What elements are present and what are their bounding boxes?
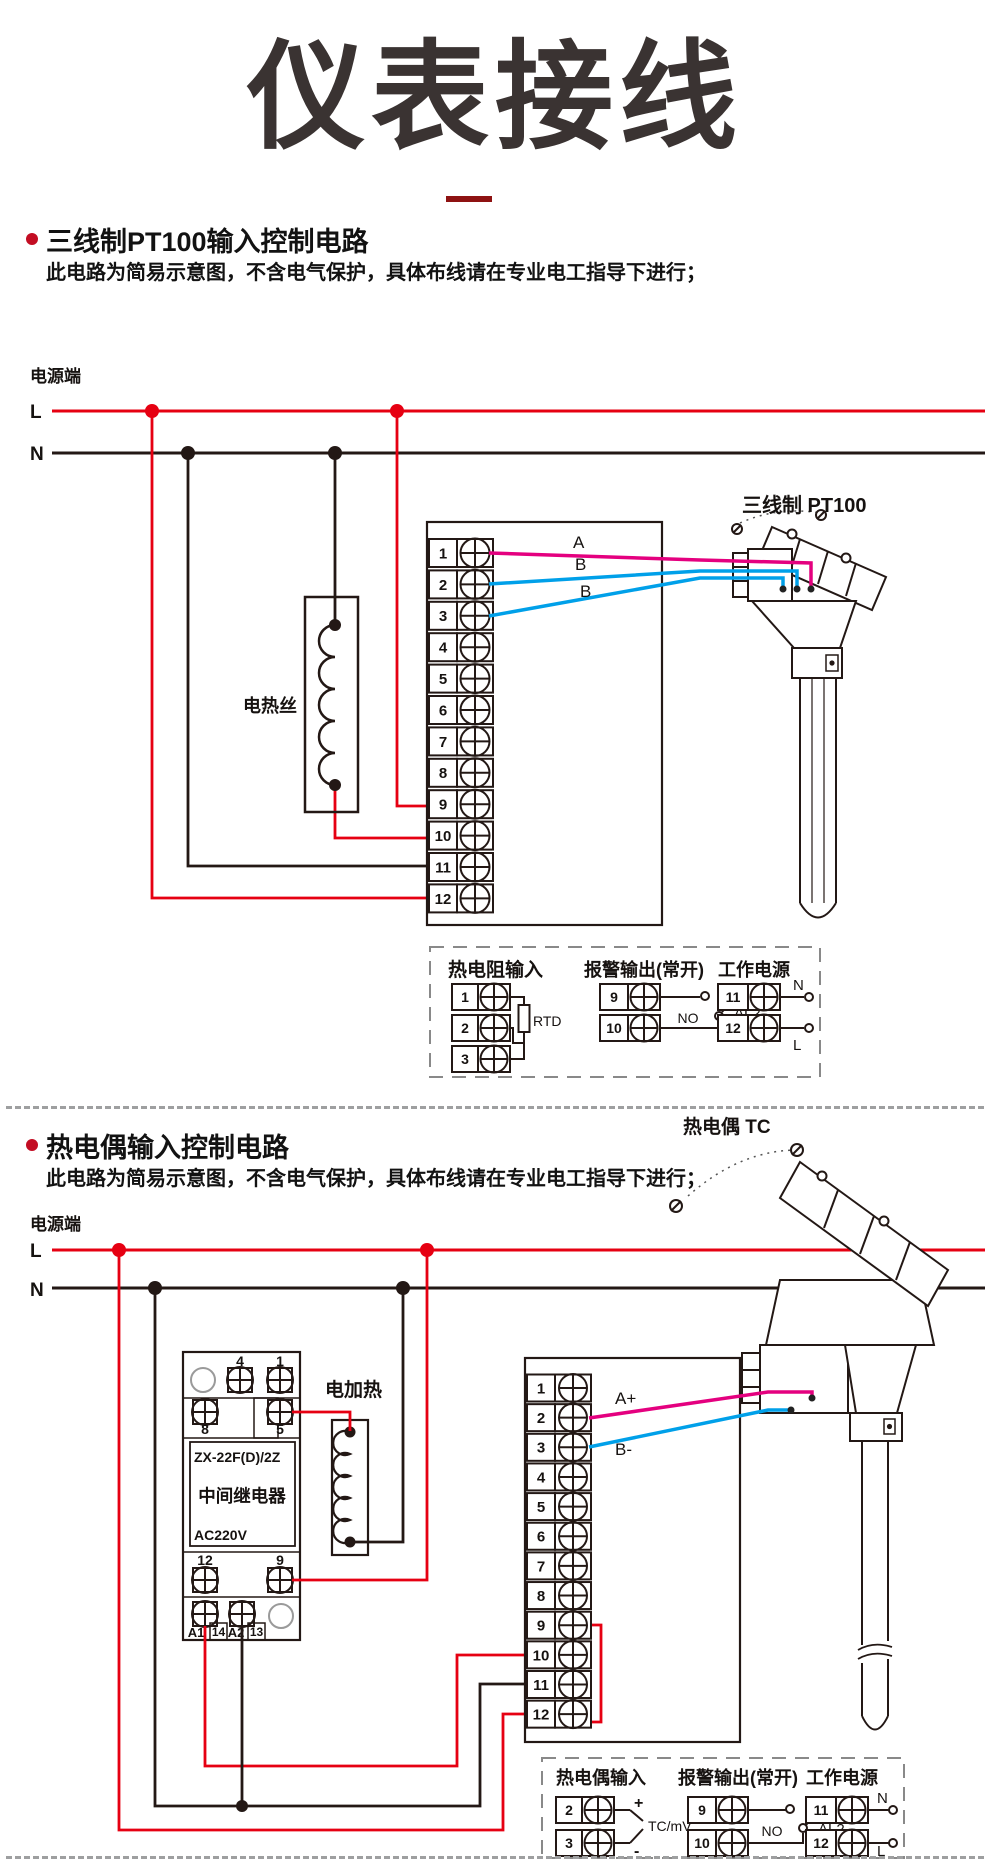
terminal-number: 2 [461,1020,469,1036]
power-n-label-2: N [877,1790,888,1807]
terminal-number: 10 [533,1647,550,1664]
terminal-number: 12 [533,1707,550,1724]
legend-alarm-title: 报警输出(常开) [584,959,704,980]
terminal-number: 5 [537,1499,545,1516]
terminal-number: 9 [610,989,618,1005]
terminal-number: 6 [537,1529,545,1546]
relay-model: ZX-22F(D)/2Z [194,1449,281,1465]
tc-device-label: TC/mV [648,1818,692,1834]
terminal-number: 9 [698,1802,706,1818]
alarm-no-label-2: NO [762,1823,783,1839]
legend-tc-terminals: 23 [556,1797,614,1857]
relay-a1: A1 [188,1625,205,1640]
legend-rtd-terminals: 123 [452,984,510,1073]
heater-label-1: 电热丝 [243,695,297,716]
wire-label-a: A [573,533,585,552]
power-n-label-1: N [793,977,804,994]
legend-1: 热电阻输入 报警输出(常开) 工作电源 123 RTD 910 NO AL2 1 [430,947,820,1077]
terminal-number: 12 [435,891,452,908]
legend-rtd-title: 热电阻输入 [448,958,543,981]
terminal-number: 4 [439,640,448,657]
terminal-number: 11 [814,1802,829,1818]
relay-13: 13 [250,1625,264,1639]
power-bus-1: 电源端 L N [30,366,985,465]
page: 仪表接线 三线制PT100输入控制电路 此电路为简易示意图，不含电气保护，具体布… [0,0,990,1864]
legend-tc-device [614,1810,643,1843]
section1-heading: 三线制PT100输入控制电路 [46,220,369,259]
legend-2: 热电偶输入 报警输出(常开) 工作电源 23 + - TC/mV 910 NO … [542,1758,904,1860]
terminal-number: 8 [537,1588,545,1605]
neutral-line-label-2: N [30,1280,44,1301]
terminal-number: 10 [435,828,452,845]
legend-power-title: 工作电源 [718,959,790,980]
sensor-label-1: 三线制 PT100 [742,493,866,517]
relay-t12: 12 [197,1552,213,1568]
legend-rtd-device [510,997,530,1059]
wire-label-b2: B [580,582,591,601]
rtd-device-label: RTD [533,1013,562,1029]
live-line-label-2: L [30,1241,42,1262]
terminal-number: 12 [725,1020,741,1036]
terminal-number: 9 [537,1618,545,1635]
terminal-number: 7 [537,1558,545,1575]
terminal-number: 2 [439,577,447,594]
heater-element-1 [305,597,358,812]
title-underline [446,196,492,202]
terminal-strip-2: 123456789101112 [527,1374,591,1728]
terminal-number: 4 [537,1469,546,1486]
wiring-1 [152,411,470,898]
section1-note: 此电路为简易示意图，不含电气保护，具体布线请在专业电工指导下进行； [46,256,706,285]
legend-alarm-terminals-2: 910 [688,1797,748,1857]
neutral-line-label: N [30,444,44,465]
terminal-number: 12 [813,1835,829,1851]
terminal-number: 9 [439,797,447,814]
terminal-number: 8 [439,765,447,782]
power-l-label-1: L [793,1037,801,1054]
terminal-number: 3 [461,1051,469,1067]
power-terminal-label-2: 电源端 [30,1214,81,1234]
relay-t5: 5 [276,1421,284,1437]
wire-label-b-minus: B- [615,1440,632,1459]
terminal-number: 11 [435,859,451,876]
live-line-label: L [30,402,42,423]
pt100-circuit-diagram: 电源端 L N 电热丝 123456789101112 [0,300,990,1085]
relay-t8: 8 [201,1421,209,1437]
tc-sensor-graphic [670,1144,948,1730]
legend-tc-title: 热电偶输入 [556,1767,646,1788]
terminal-number: 7 [439,734,447,751]
legend-alarm-terminals: 910 [600,984,660,1042]
relay-name: 中间继电器 [198,1486,286,1506]
page-title: 仪表接线 [0,34,990,164]
thermocouple-circuit-diagram: 电源端 L N 4 1 8 [0,1110,990,1864]
terminal-number: 11 [533,1677,549,1694]
bottom-separator [6,1856,984,1859]
legend-power-title-2: 工作电源 [806,1767,878,1788]
sensor-label-2: 热电偶 TC [683,1115,771,1138]
relay-14: 14 [212,1625,226,1639]
terminal-number: 5 [439,671,447,688]
tc-plus-label: + [634,1795,643,1812]
terminal-number: 6 [439,702,447,719]
terminal-number: 3 [537,1440,545,1457]
heater-element-2 [332,1420,368,1555]
terminal-number: 11 [726,989,741,1005]
section-separator [6,1106,984,1109]
relay-voltage: AC220V [194,1527,248,1543]
wire-label-a-plus: A+ [615,1389,636,1408]
terminal-number: 1 [537,1380,545,1397]
terminal-number: 2 [565,1802,573,1818]
terminal-number: 1 [461,989,469,1005]
terminal-number: 3 [565,1835,573,1851]
terminal-number: 1 [439,545,447,562]
legend-alarm-title-2: 报警输出(常开) [678,1767,798,1788]
terminal-number: 2 [537,1410,545,1427]
alarm-no-label-1: NO [678,1010,699,1026]
wire-label-b1: B [575,555,586,574]
relay-t9: 9 [276,1552,284,1568]
power-pins-2 [868,1806,897,1847]
terminal-strip-1: 123456789101112 [429,539,493,913]
relay-t1: 1 [276,1353,284,1369]
power-terminal-label: 电源端 [30,366,81,386]
relay-t4: 4 [236,1353,244,1369]
terminal-number: 10 [606,1020,622,1036]
terminal-number: 3 [439,608,447,625]
heater-label-2: 电加热 [325,1378,382,1401]
power-pins-1 [780,993,813,1032]
terminal-number: 10 [694,1835,710,1851]
section1-bullet-icon [26,233,38,245]
